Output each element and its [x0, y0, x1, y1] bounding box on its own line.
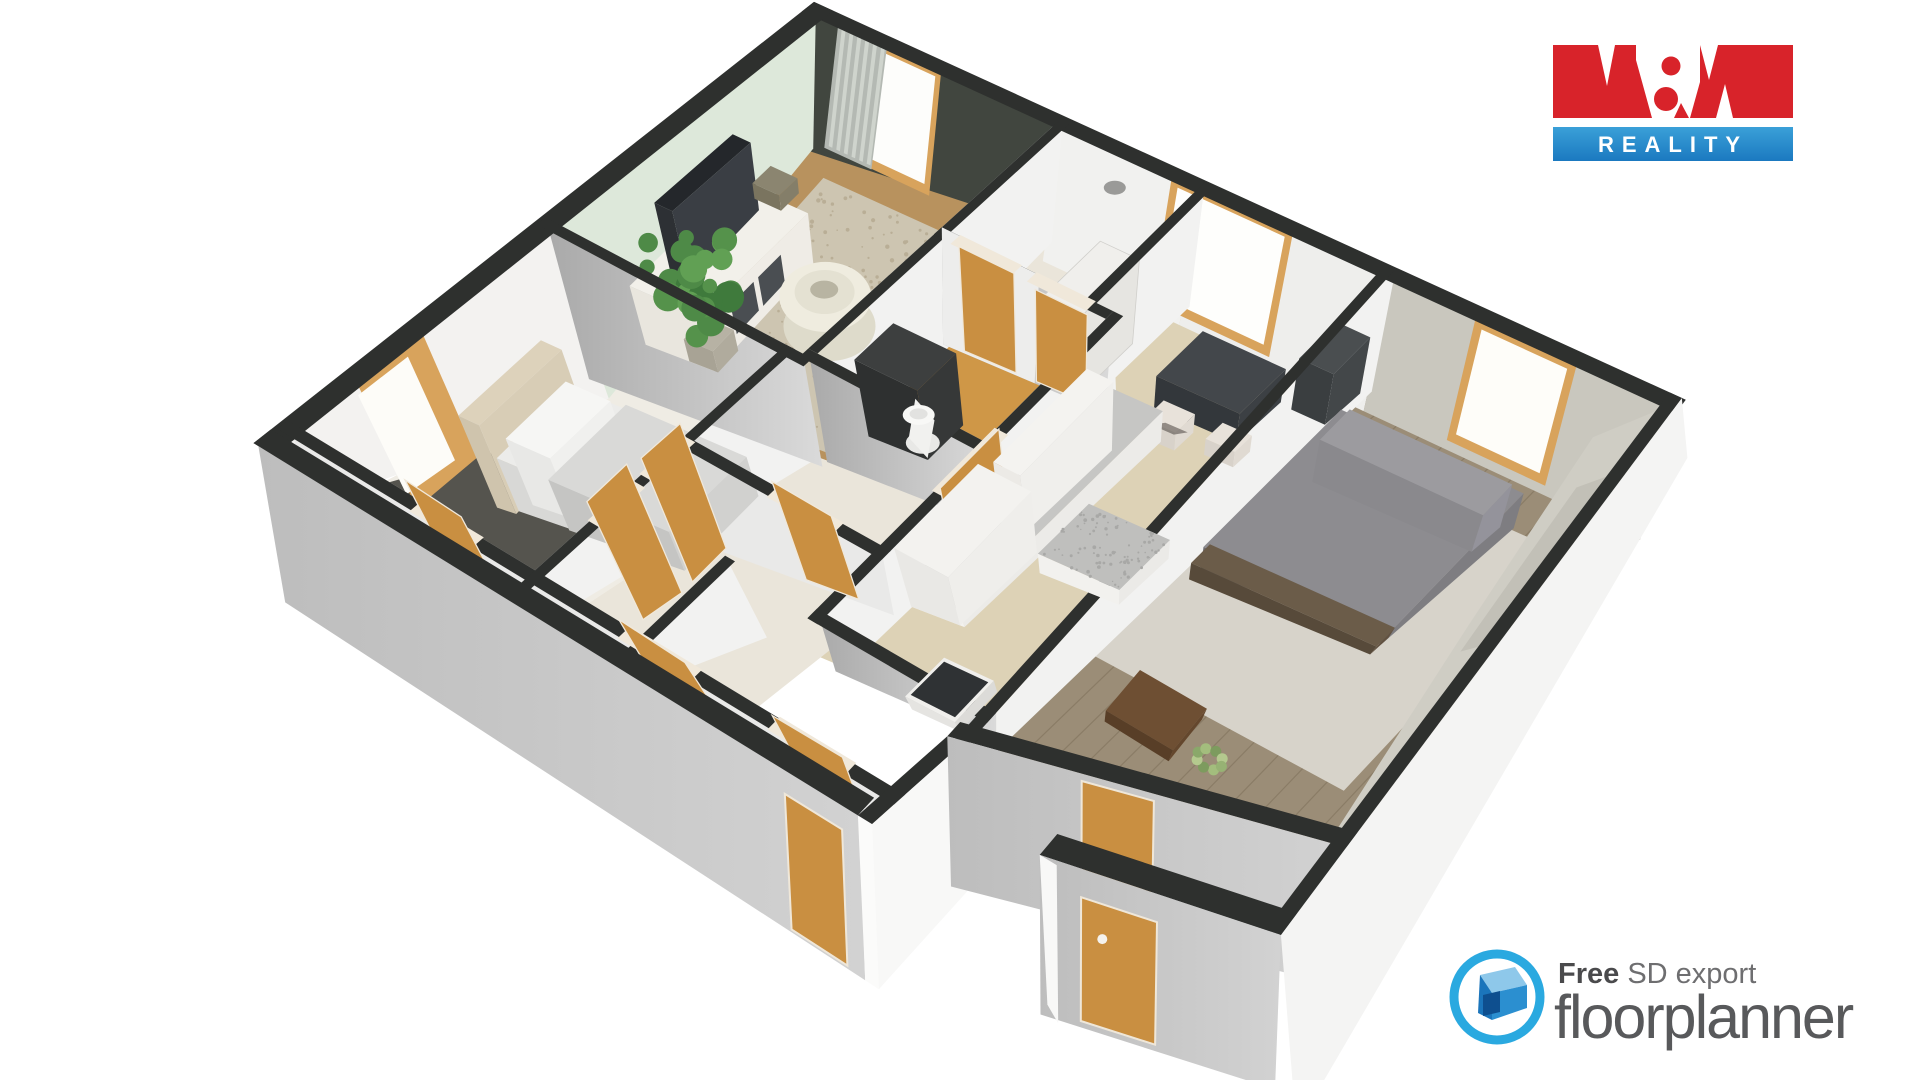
svg-text:floorplanner: floorplanner: [1554, 983, 1854, 1051]
svg-text:REALITY: REALITY: [1598, 132, 1748, 157]
